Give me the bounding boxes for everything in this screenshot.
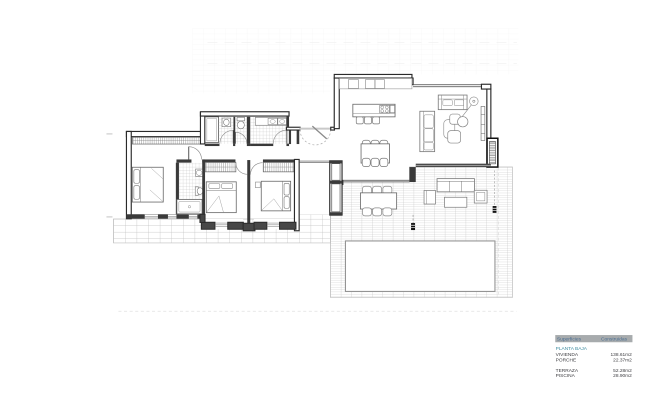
svg-text:22.37m2: 22.37m2 [613,358,632,364]
svg-text:VIVIENDA: VIVIENDA [556,352,579,358]
svg-text:PISCINA: PISCINA [556,373,576,379]
svg-text:Superficies: Superficies [557,336,582,342]
svg-text:PLANTA BAJA: PLANTA BAJA [556,346,588,352]
svg-text:PORCHE: PORCHE [556,358,577,364]
svg-text:TERRAZA: TERRAZA [556,368,579,374]
svg-text:Construidas: Construidas [601,336,628,342]
svg-text:28.90m2: 28.90m2 [613,373,632,379]
svg-text:52.28m2: 52.28m2 [613,368,632,374]
svg-text:138.61m2: 138.61m2 [611,352,633,358]
